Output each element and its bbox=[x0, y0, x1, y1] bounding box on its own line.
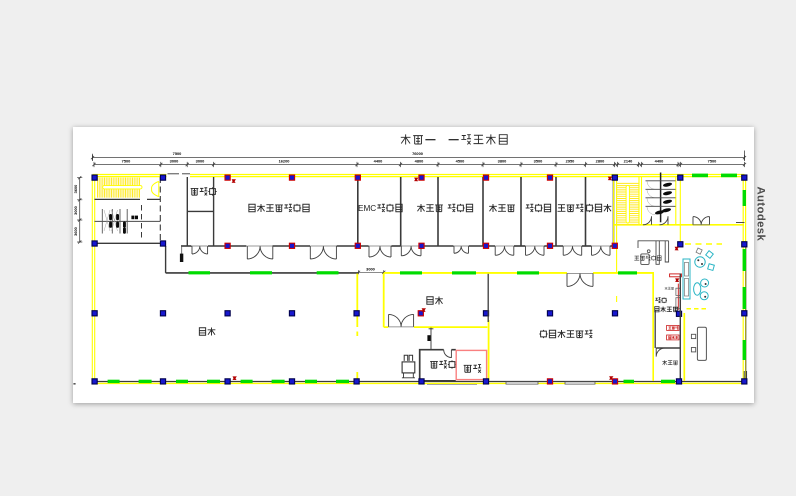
svg-text:2800: 2800 bbox=[596, 158, 605, 163]
svg-text:4800: 4800 bbox=[415, 158, 424, 163]
svg-text:4400: 4400 bbox=[655, 158, 664, 163]
svg-text:7500: 7500 bbox=[173, 151, 182, 156]
svg-text:Autodesk: Autodesk bbox=[755, 187, 767, 242]
svg-text:4400: 4400 bbox=[374, 158, 383, 163]
svg-text:76000: 76000 bbox=[412, 151, 423, 156]
svg-text:3600: 3600 bbox=[73, 227, 78, 236]
svg-text:3600: 3600 bbox=[73, 185, 78, 194]
svg-text:3800: 3800 bbox=[498, 158, 507, 163]
svg-text:3500: 3500 bbox=[534, 158, 543, 163]
svg-text:3000: 3000 bbox=[196, 158, 205, 163]
svg-text:16200: 16200 bbox=[279, 158, 290, 163]
svg-text:4500: 4500 bbox=[456, 158, 465, 163]
svg-text:2950: 2950 bbox=[566, 158, 575, 163]
svg-text:2140: 2140 bbox=[624, 158, 633, 163]
svg-text:3000: 3000 bbox=[73, 206, 78, 215]
svg-text:7500: 7500 bbox=[122, 158, 131, 163]
svg-text:3000: 3000 bbox=[366, 267, 375, 272]
svg-text:3000: 3000 bbox=[170, 158, 179, 163]
svg-text:EMC: EMC bbox=[358, 204, 376, 213]
svg-text:7500: 7500 bbox=[708, 158, 717, 163]
